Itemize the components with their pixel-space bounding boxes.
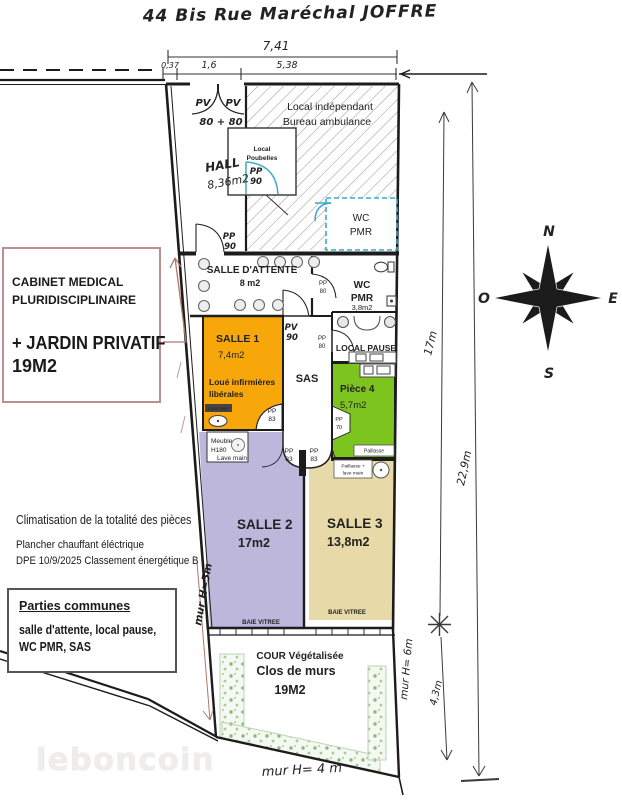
wc-upper-label-1: WC [353,213,370,224]
dim-22-9m: 22,9m [454,449,474,486]
dim-4-3m: 4,3m [428,679,445,707]
salle1-name: SALLE 1 [216,333,259,345]
piece4-counter [360,364,395,377]
parties-communes-line-2: WC PMR, SAS [19,639,148,656]
compass-west: O [478,291,490,307]
sas-name: SAS [296,373,319,385]
meuble-h180: Meuble H180 Lave main [207,432,248,462]
door-pv90-l2: 90 [286,333,298,343]
pause-name: LOCAL PAUSE [336,343,396,353]
cabinet-line-4: 19M2 [12,354,155,378]
door-pp90-l2: 90 [224,242,236,252]
door-pv-right: PV [225,98,241,109]
piece4-name: Pièce 4 [340,384,375,395]
piece4-area: 5,7m2 [340,400,366,411]
paillasse-lave-label-2: lave main [343,471,364,477]
heating-line: Plancher chauffant éléctrique [16,539,205,551]
features-text: Climatisation de la totalité des pièces … [16,512,226,567]
independant-label-2: Bureau ambulance [283,116,371,128]
top-dimensions: 7,41 0,37 1,6 5,38 [161,39,397,80]
cour-area: 19M2 [274,683,305,697]
floor-plan-page: 44 Bis Rue Maréchal JOFFRE [0,0,622,800]
door-wc-pp80-l1: PP [319,281,327,287]
wc-pmr-toilet-icon [375,262,397,306]
salle3-area: 13,8m2 [327,535,369,549]
attente-name: SALLE D'ATTENTE [207,265,298,276]
entry-width-label: 80 + 80 [199,117,242,128]
independant-label-1: Local indépendant [287,101,373,113]
meuble-label-2: H180 [211,447,227,454]
cabinet-line-3: + JARDIN PRIVATIF [12,333,144,354]
dim-seg2: 1,6 [201,60,216,71]
door-pp90-blue-l1: PP [250,167,263,177]
door-pause-pp80-l2: 80 [319,344,326,350]
door-pp90-blue-l2: 90 [250,177,262,187]
cabinet-medical-box: CABINET MEDICAL PLURIDISCIPLINAIRE + JAR… [2,247,161,403]
door-pv90-l1: PV [285,323,299,333]
door-sas-left-pp83-l1: PP [285,448,294,455]
salle2-lave-main-label: Lave main [217,455,247,462]
cabinet-line-1: CABINET MEDICAL [12,273,155,291]
door-pp90-l1: PP [223,232,236,242]
climate-line: Climatisation de la totalité des pièces [16,512,188,527]
dpe-line: DPE 10/9/2025 Classement énergétique B [16,555,201,567]
door-sas-left-pp83-l2: 83 [285,456,293,463]
salle1-area: 7,4m2 [218,350,244,361]
salle1-note-2: libérales [209,389,244,399]
paillasse-lave-label-1: Paillasse + [341,464,365,470]
door-salle1-pp83-l2: 83 [268,416,276,423]
meuble-label-1: Meuble [211,438,233,445]
right-dimensions [428,82,499,781]
door-piece4-pp70-l2: 70 [336,425,342,431]
cabinet-line-2: PLURIDISCIPLINAIRE [12,291,155,309]
attente-area: 8 m2 [240,278,261,288]
leboncoin-watermark: leboncoin [36,742,215,778]
paillasse-piece4: Paillasse [354,445,394,456]
parties-communes-title: Parties communes [19,599,171,613]
wall-height-bottom: mur H= 4 m [261,761,342,780]
salle1-note-1: Loué infirmières [209,377,275,387]
wall-height-right: mur H= 6m [398,638,415,700]
dim-seg3: 5,38 [276,60,297,71]
cour-label-1: COUR Végétalisée [256,651,344,662]
door-pv-left: PV [195,98,211,109]
compass-south: S [544,366,554,382]
compass-north: N [543,224,555,240]
salle1-lave-main-label: Lave main [208,406,229,411]
dim-seg1: 0,37 [161,61,180,70]
poubelles-label-1: Local [254,146,271,153]
parties-communes-box: Parties communes salle d'attente, local … [7,588,177,673]
door-salle1-pp83-l1: PP [268,408,277,415]
dim-total: 7,41 [263,39,290,53]
parties-communes-line-1: salle d'attente, local pause, [19,622,148,639]
baie-vitree-salle2: BAIE VITREE [242,620,280,626]
door-piece4-pp70-l1: PP [335,417,343,423]
wc-upper-label-2: PMR [350,227,372,238]
salle2-name: SALLE 2 [237,517,293,532]
compass-rose: N S E O [478,224,618,382]
door-sas-right-pp83-l2: 83 [310,456,318,463]
paillasse-salle3: Paillasse + lave main [334,460,389,478]
salle2-area: 17m2 [238,536,270,550]
paillasse-label: Paillasse [364,449,384,455]
compass-east: E [608,291,618,307]
poubelles-label-2: Poubelles [247,155,278,162]
salle3-name: SALLE 3 [327,516,383,531]
door-sas-right-pp83-l1: PP [310,448,319,455]
cour-label-2: Clos de murs [256,664,335,678]
baie-vitree-salle3: BAIE VITREE [328,610,366,616]
dim-17m: 17m [421,330,440,357]
wc-pmr-upper-area [326,198,397,250]
local-pause-furniture [338,316,397,363]
wc-pmr-name-1: WC [354,280,371,291]
door-wc-pp80-l2: 80 [320,289,327,295]
door-pause-pp80-l1: PP [318,336,326,342]
wc-pmr-area: 3,8m2 [352,303,373,312]
